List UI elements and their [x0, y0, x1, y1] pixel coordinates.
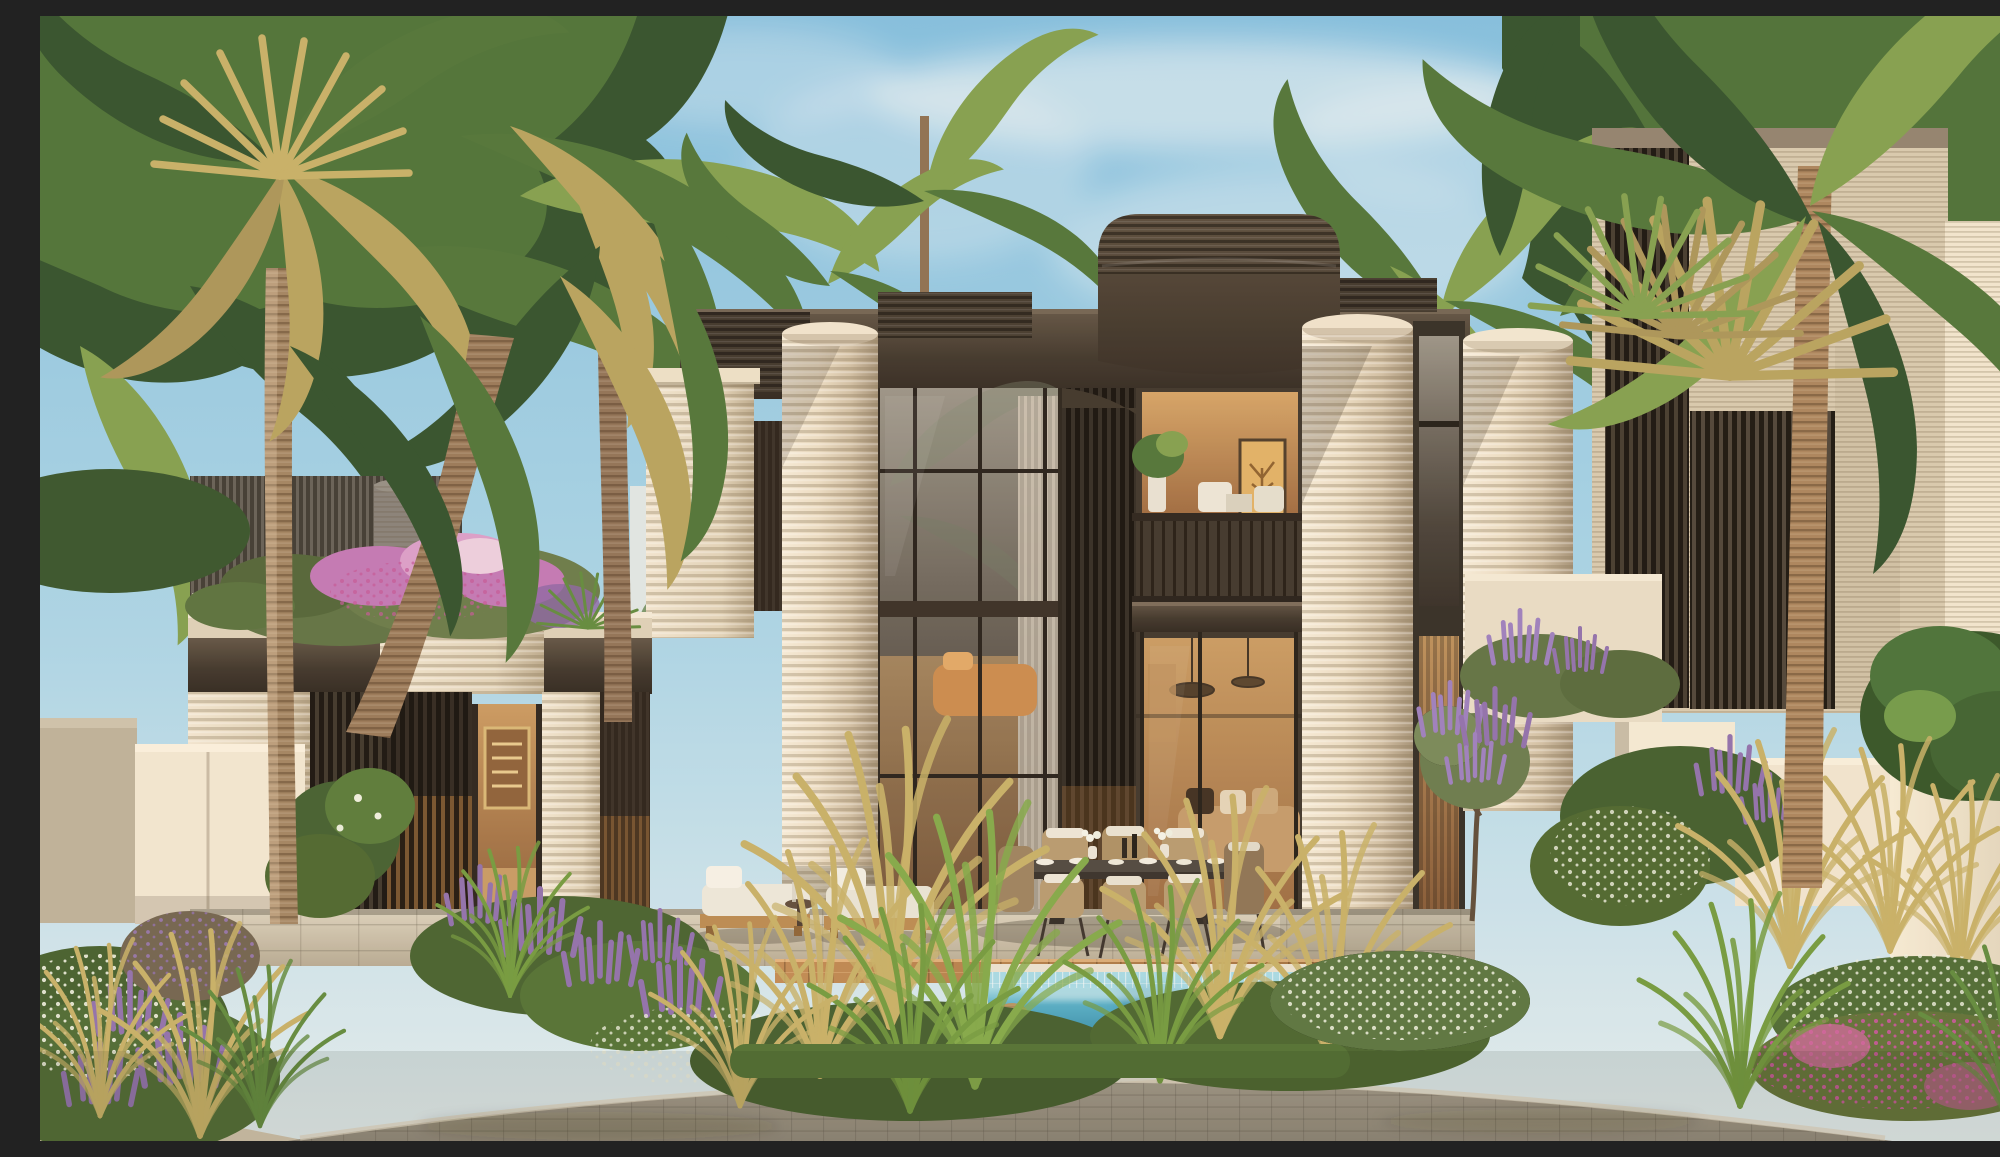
villa-rendering: Sunlit rendering of a modern two-storey … — [40, 16, 2000, 1141]
villa-rendering-svg: Sunlit rendering of a modern two-storey … — [40, 16, 2000, 1141]
light-overlay — [40, 16, 2000, 1141]
